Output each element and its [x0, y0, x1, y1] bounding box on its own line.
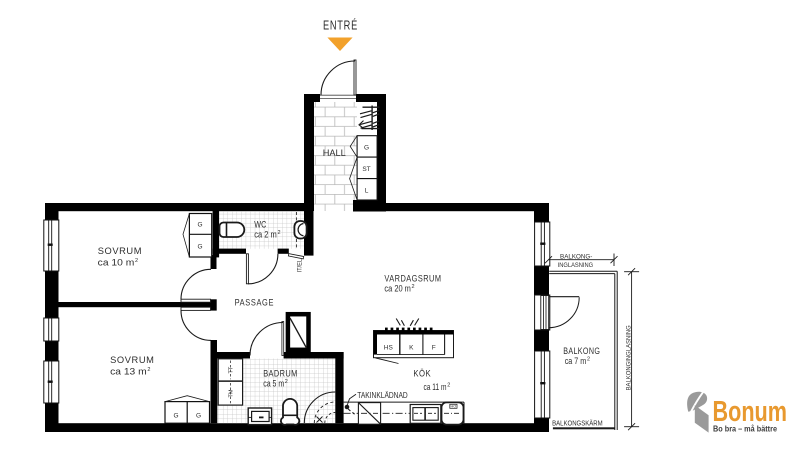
- svg-text:BALKONG-: BALKONG-: [560, 254, 592, 261]
- svg-text:HALL: HALL: [323, 148, 346, 159]
- svg-text:ST: ST: [362, 166, 370, 173]
- svg-text:2: 2: [412, 284, 415, 290]
- svg-text:IT/EL: IT/EL: [297, 258, 304, 272]
- svg-text:F: F: [432, 345, 436, 352]
- svg-text:2: 2: [135, 258, 138, 264]
- svg-text:ca 20 m: ca 20 m: [384, 284, 411, 294]
- svg-text:BALKONGINGLASNING: BALKONGINGLASNING: [625, 325, 632, 390]
- svg-text:HO: HO: [451, 405, 457, 409]
- svg-text:SOVRUM: SOVRUM: [110, 355, 154, 366]
- svg-text:KÖK: KÖK: [413, 368, 431, 379]
- svg-text:INGLASNING: INGLASNING: [558, 262, 593, 269]
- svg-text:TM: TM: [229, 389, 235, 397]
- svg-text:K: K: [409, 345, 414, 352]
- svg-text:Bo bra – må bättre: Bo bra – må bättre: [713, 424, 777, 434]
- svg-text:L: L: [365, 188, 369, 195]
- svg-text:ca 11 m: ca 11 m: [424, 382, 447, 392]
- svg-text:ca 7 m: ca 7 m: [565, 356, 587, 366]
- svg-text:TT: TT: [229, 366, 235, 373]
- svg-text:PASSAGE: PASSAGE: [235, 297, 275, 308]
- svg-text:2: 2: [447, 382, 450, 388]
- svg-text:SOVRUM: SOVRUM: [98, 246, 142, 257]
- svg-text:ca 10 m: ca 10 m: [98, 258, 135, 268]
- svg-text:BALKONGSKÄRM: BALKONGSKÄRM: [552, 420, 603, 428]
- svg-text:2: 2: [147, 367, 150, 373]
- svg-text:TAKINKLÄDNAD: TAKINKLÄDNAD: [357, 391, 408, 400]
- svg-text:G: G: [364, 145, 369, 152]
- svg-text:ca 2 m: ca 2 m: [254, 229, 276, 239]
- svg-text:ca 13 m: ca 13 m: [110, 367, 147, 377]
- svg-text:G: G: [197, 244, 202, 251]
- svg-text:G: G: [173, 413, 178, 420]
- svg-text:G: G: [196, 413, 201, 420]
- svg-text:ca 5 m: ca 5 m: [263, 378, 284, 388]
- svg-text:2: 2: [285, 379, 288, 385]
- svg-text:ENTRÉ: ENTRÉ: [323, 17, 358, 32]
- svg-text:2: 2: [587, 357, 590, 363]
- svg-text:2: 2: [278, 230, 281, 236]
- svg-text:HS: HS: [384, 345, 394, 352]
- svg-text:G: G: [197, 222, 202, 229]
